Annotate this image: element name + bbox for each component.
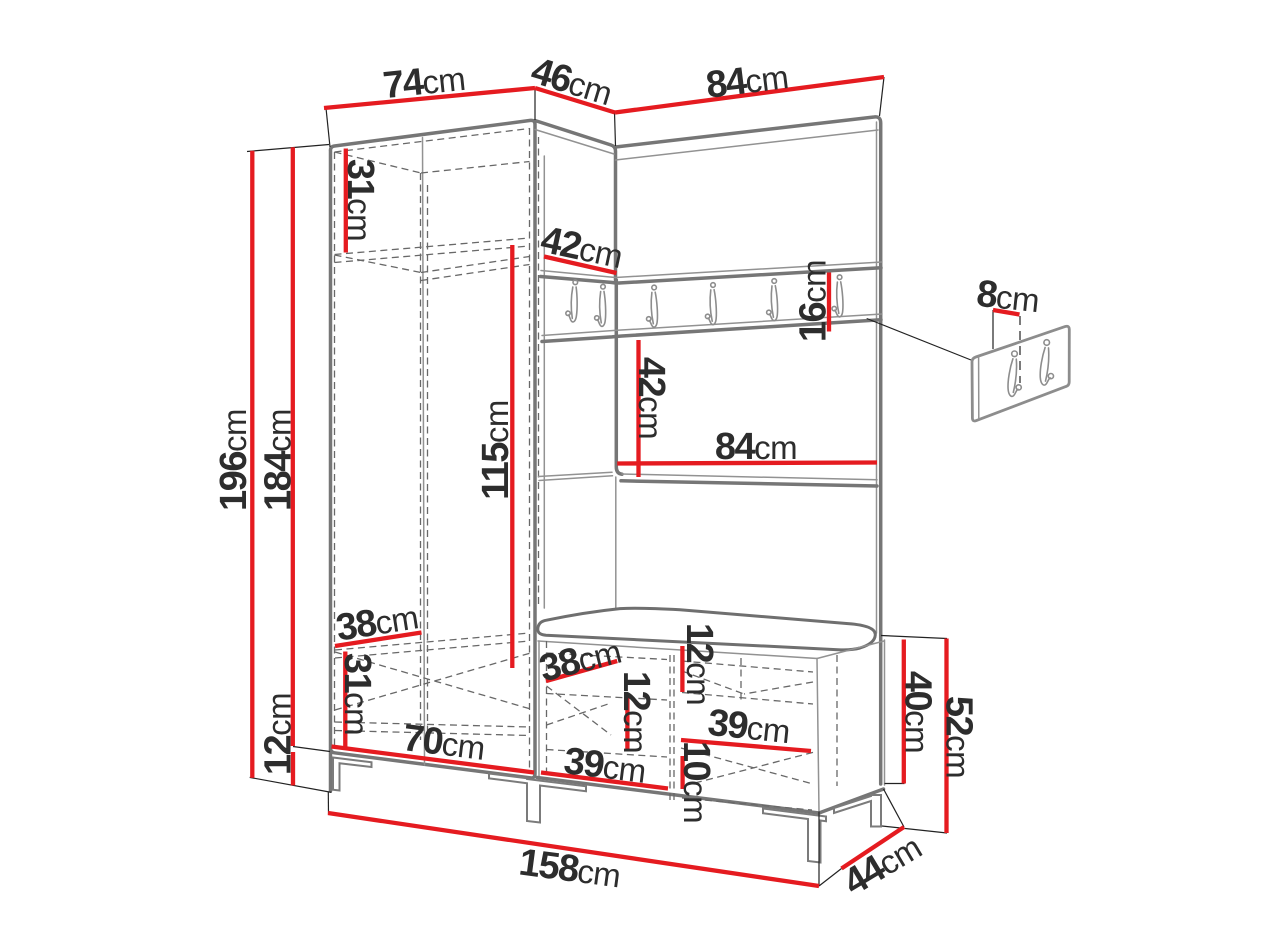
svg-text:184cm: 184cm: [258, 409, 300, 511]
svg-text:84cm: 84cm: [715, 426, 797, 468]
svg-text:12cm: 12cm: [258, 693, 300, 775]
svg-text:16cm: 16cm: [793, 260, 835, 342]
svg-text:12cm: 12cm: [678, 623, 720, 705]
svg-text:10cm: 10cm: [675, 741, 717, 823]
svg-text:12cm: 12cm: [615, 671, 657, 753]
svg-text:40cm: 40cm: [897, 671, 939, 753]
svg-text:115cm: 115cm: [475, 400, 517, 500]
svg-text:31cm: 31cm: [336, 653, 378, 735]
svg-text:42cm: 42cm: [630, 357, 672, 439]
svg-text:52cm: 52cm: [938, 696, 980, 778]
svg-text:31cm: 31cm: [339, 159, 381, 241]
svg-text:196cm: 196cm: [213, 409, 255, 511]
